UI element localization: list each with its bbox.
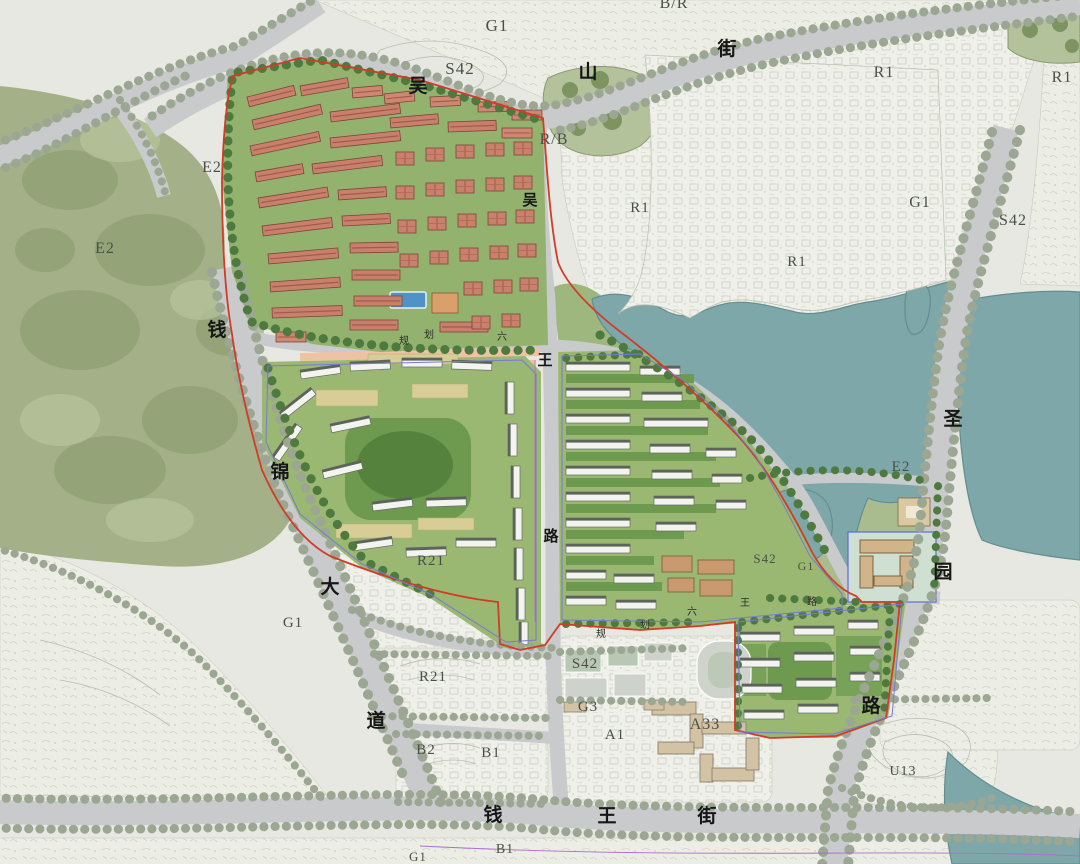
zone-label-R/B: R/B [540, 131, 569, 148]
villa [398, 220, 416, 233]
zone-label-G1: G1 [283, 615, 303, 631]
building-row [430, 95, 460, 107]
apartment-slab [516, 588, 525, 620]
zone-label-E2: E2 [202, 159, 222, 176]
street-name-char-路: 路 [861, 694, 881, 717]
street-name-char-锦: 锦 [270, 460, 289, 483]
apartment-slab [614, 574, 654, 583]
zone-label-B1: B1 [481, 745, 501, 761]
zone-label-S42: S42 [572, 656, 598, 672]
zone-label-G1: G1 [409, 849, 427, 864]
zone-label-B1: B1 [496, 842, 514, 857]
apartment-slab [566, 388, 630, 397]
zone-label-S42: S42 [445, 59, 474, 78]
zone-label-R1: R1 [1052, 69, 1073, 86]
street-name-char-街: 街 [696, 804, 716, 827]
villa [516, 210, 534, 223]
villa [494, 280, 512, 293]
minor-road-char-路: 路 [807, 595, 817, 608]
building-row [352, 270, 400, 280]
apartment-slab [566, 414, 630, 423]
building-row [448, 120, 496, 132]
apartment-slab [798, 704, 838, 713]
zone-label-A1: A1 [605, 727, 625, 743]
apartment-slab [794, 626, 834, 635]
apartment-slab [712, 474, 742, 483]
court-c [644, 643, 672, 661]
villa [426, 183, 444, 196]
apartment-slab [652, 470, 692, 479]
building-row [350, 320, 398, 330]
apartment-slab [654, 496, 694, 505]
apartment-slab [616, 600, 656, 609]
villa [456, 180, 474, 193]
villa [430, 251, 448, 264]
zone-label-R1: R1 [630, 200, 650, 216]
apartment-slab [514, 548, 523, 580]
villa [488, 212, 506, 225]
apartment-slab [511, 466, 520, 498]
apartment-slab [706, 448, 736, 457]
apartment-slab [566, 518, 630, 527]
zone-label-B2: B2 [416, 742, 436, 758]
apartment-slab [566, 570, 606, 579]
apartment-slab [794, 652, 834, 661]
villa [472, 316, 490, 329]
villa [520, 278, 538, 291]
building-row [350, 242, 398, 253]
zone-label-R21: R21 [417, 553, 445, 569]
apartment-slab [566, 492, 630, 501]
building-row [354, 296, 402, 306]
villa [396, 152, 414, 165]
villa [456, 145, 474, 158]
court-e [614, 674, 646, 696]
apartment-slab [456, 538, 496, 547]
zone-label-E2: E2 [95, 240, 115, 257]
apartment-slab [505, 382, 514, 414]
minor-road-char-规: 规 [596, 627, 606, 640]
villa [458, 214, 476, 227]
zone-label-S42: S42 [999, 212, 1027, 229]
street-name-char-大: 大 [320, 575, 339, 598]
apartment-slab [848, 620, 878, 629]
zone-label-B/R: B/R [660, 0, 689, 12]
apartment-slab [656, 522, 696, 531]
zone-label-R1: R1 [787, 254, 807, 270]
zone-label-G3: G3 [578, 699, 598, 715]
zone-label-A33: A33 [690, 716, 721, 733]
zone-label-R21: R21 [419, 669, 447, 685]
zone-label-G1: G1 [909, 194, 931, 211]
apartment-slab [566, 440, 630, 449]
apartment-slab [740, 632, 780, 641]
clubhouse [432, 293, 458, 313]
villa [400, 254, 418, 267]
street-name-char-路: 路 [543, 527, 559, 545]
cw-courtyard-canopy [357, 431, 453, 499]
right-lake [958, 291, 1080, 560]
minor-road-char-六: 六 [687, 606, 697, 618]
master-plan-canvas: G1S42B/RR/BR1R1R1R1G1S42E2E2E2R21R21G1B2… [0, 0, 1080, 864]
street-name-char-圣: 圣 [943, 408, 963, 430]
street-name-char-吴: 吴 [522, 191, 537, 209]
building-row [352, 85, 383, 98]
zone-label-G1: G1 [798, 559, 815, 573]
street-name-char-街: 街 [716, 37, 736, 60]
street-name-char-王: 王 [537, 351, 552, 369]
apartment-slab [508, 424, 517, 456]
street-name-char-钱: 钱 [483, 803, 502, 826]
apartment-slab [566, 544, 630, 553]
building-row [502, 128, 532, 138]
apartment-slab [744, 710, 784, 719]
minor-road-char-王: 王 [740, 598, 750, 609]
villa [426, 148, 444, 161]
street-name-char-园: 园 [933, 561, 952, 583]
apartment-slab [350, 360, 390, 371]
street-name-char-山: 山 [578, 61, 597, 83]
road-qianwang-street [0, 809, 1080, 826]
apartment-slab [650, 444, 690, 453]
site-plan-map: G1S42B/RR/BR1R1R1R1G1S42E2E2E2R21R21G1B2… [0, 0, 1080, 864]
street-name-char-王: 王 [597, 805, 616, 827]
villa [514, 176, 532, 189]
street-name-char-吴: 吴 [408, 75, 427, 97]
zone-label-R1: R1 [874, 64, 895, 81]
villa [428, 217, 446, 230]
apartment-slab [644, 418, 708, 427]
villa [486, 143, 504, 156]
apartment-slab [566, 362, 630, 371]
villa [502, 314, 520, 327]
villa [486, 178, 504, 191]
minor-road-char-划: 划 [424, 328, 434, 341]
building-row [342, 213, 390, 225]
apartment-slab [742, 684, 782, 693]
apartment-slab [513, 508, 522, 540]
apartment-slab [426, 497, 466, 507]
apartment-slab [740, 658, 780, 667]
villa [460, 248, 478, 261]
minor-road-char-划: 划 [640, 618, 650, 631]
apartment-slab [642, 392, 682, 401]
zone-label-G1: G1 [486, 16, 509, 35]
minor-road-char-规: 规 [399, 334, 409, 347]
villa [396, 186, 414, 199]
street-name-char-钱: 钱 [207, 318, 226, 341]
court-d [565, 678, 607, 698]
apartment-slab [716, 500, 746, 509]
villa [514, 142, 532, 155]
minor-road-char-六: 六 [497, 331, 507, 343]
apartment-slab [566, 466, 630, 475]
zone-label-U13: U13 [889, 764, 916, 779]
villa [490, 246, 508, 259]
villa [518, 244, 536, 257]
zone-label-E2: E2 [892, 459, 911, 475]
apartment-slab [566, 596, 606, 605]
villa [464, 282, 482, 295]
apartment-slab [796, 678, 836, 687]
zone-label-S42: S42 [753, 551, 776, 566]
building-row [272, 306, 342, 318]
street-name-char-道: 道 [366, 709, 385, 732]
